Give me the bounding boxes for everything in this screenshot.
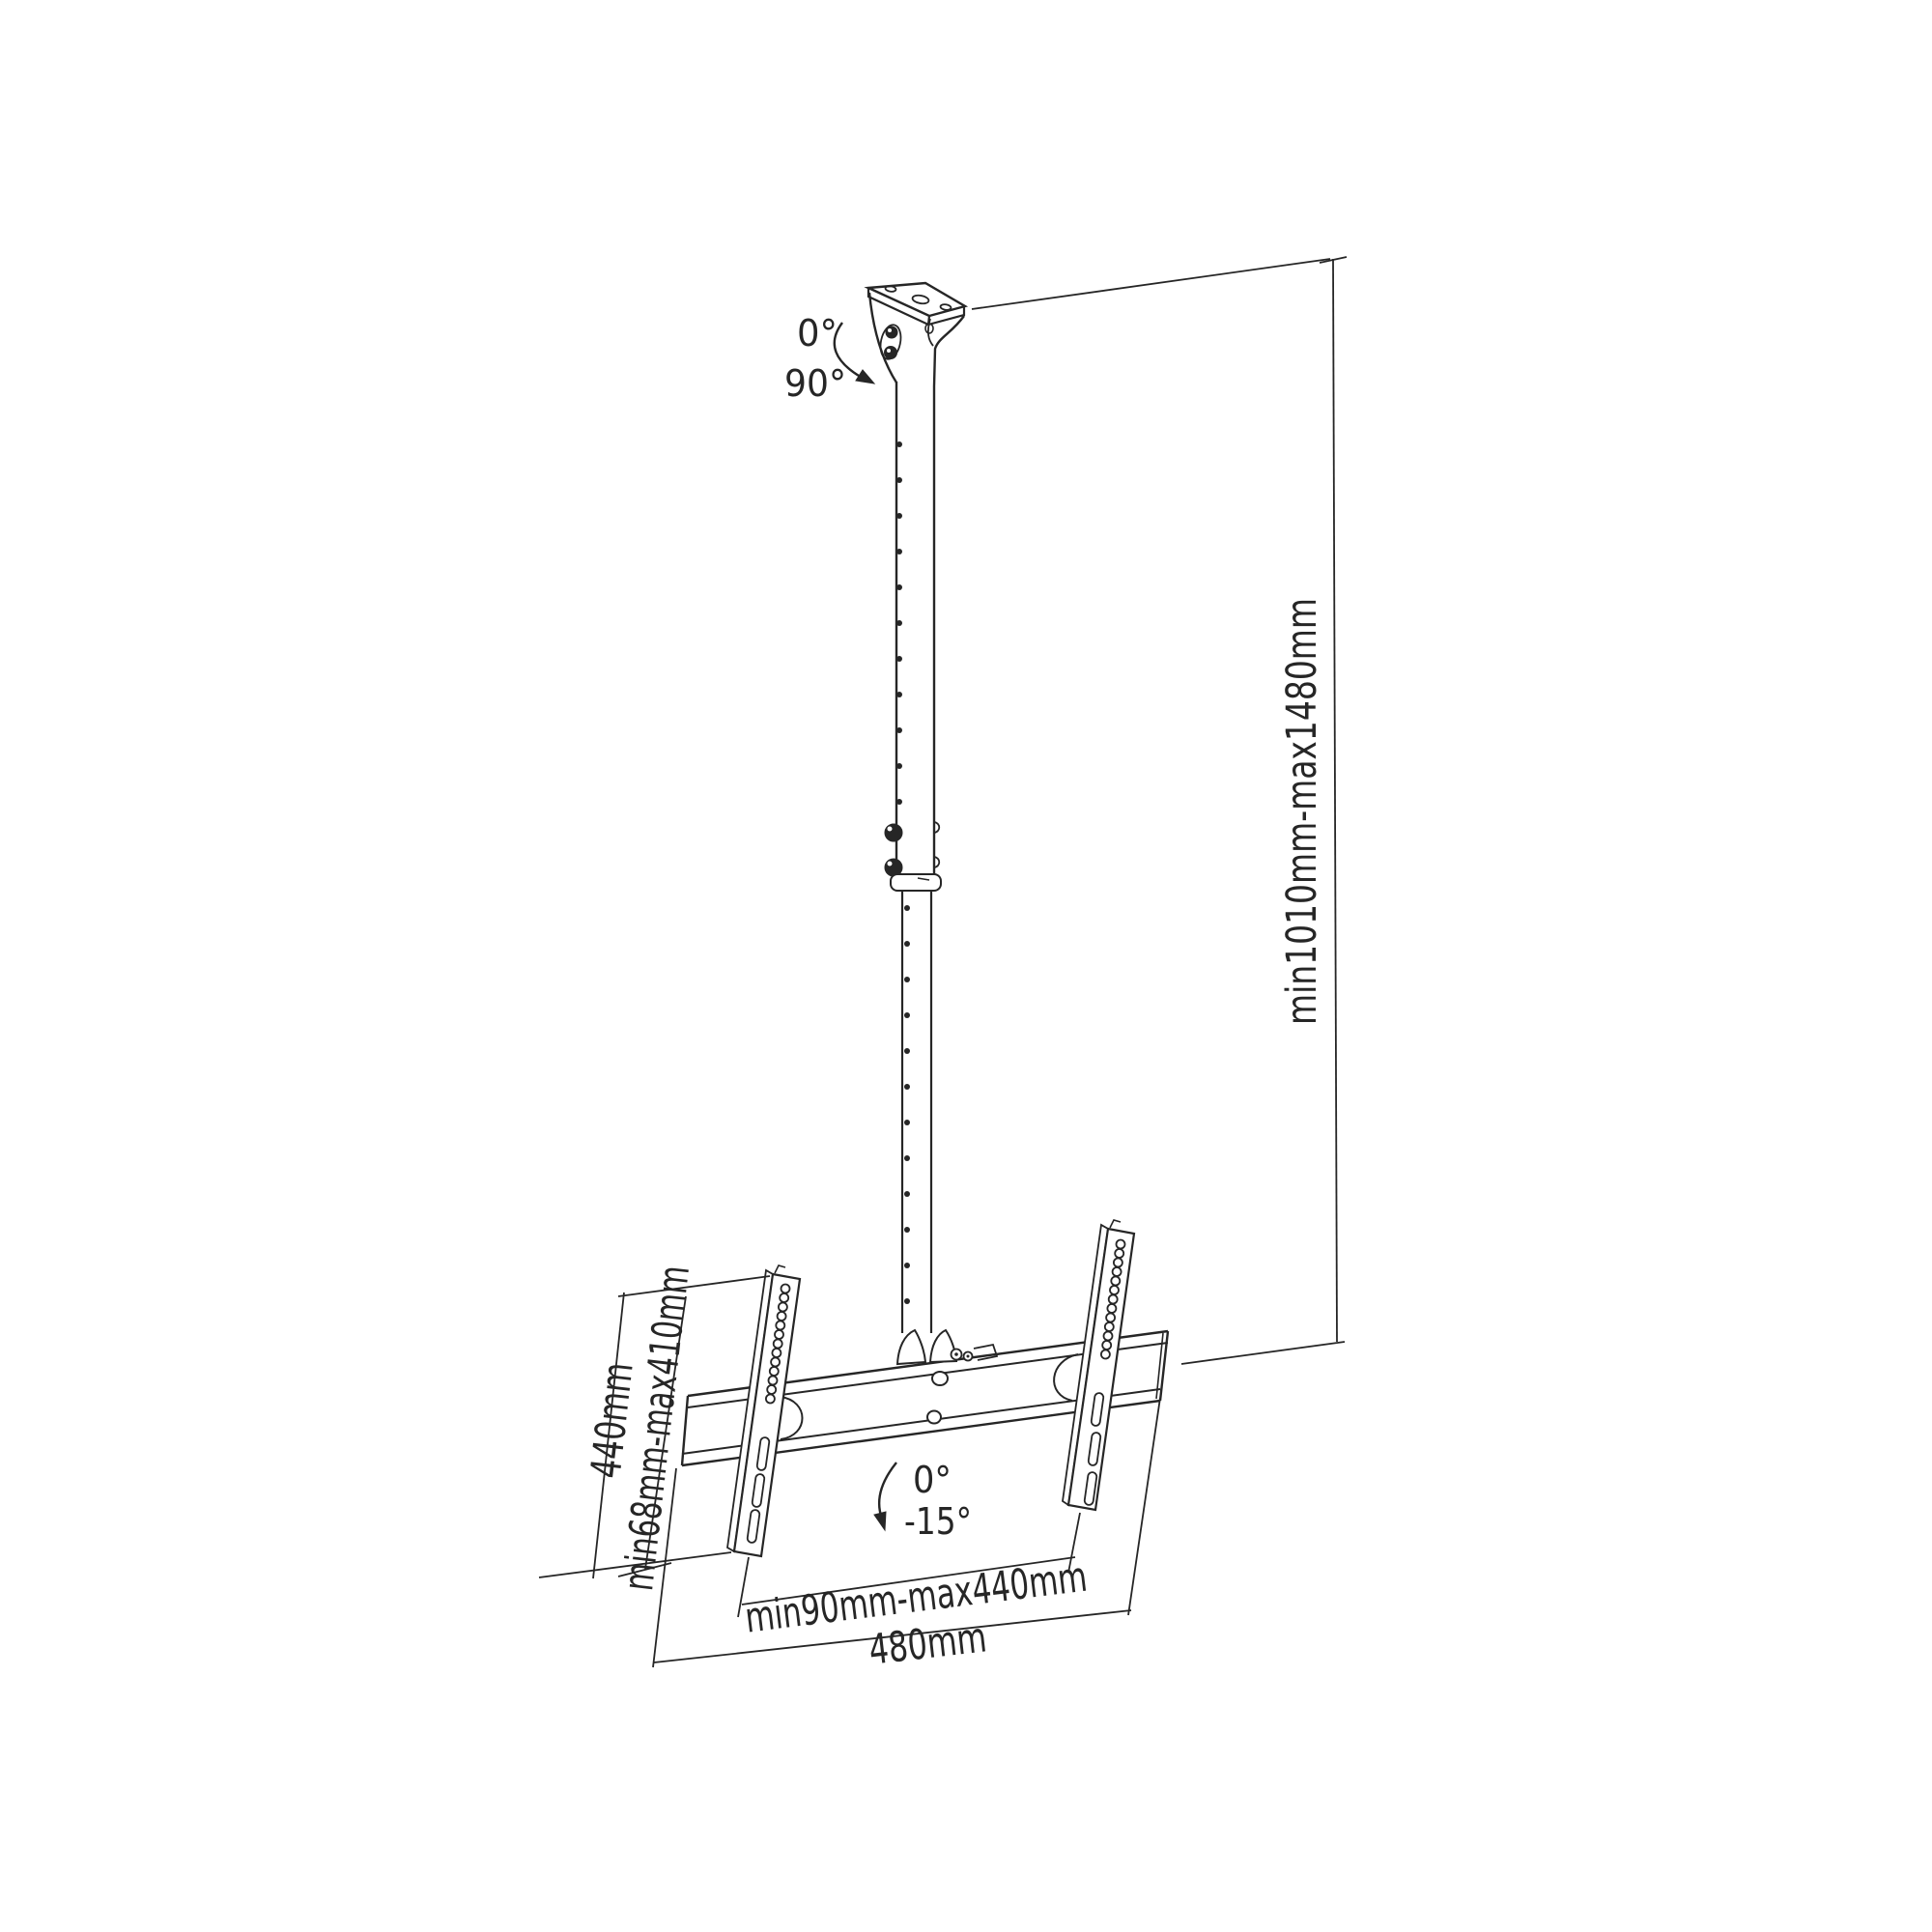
ceiling-tv-mount-diagram-page: min1010mm-max1480mm 440mm min68mm-max410…	[0, 0, 1932, 1932]
screen-tilt-annotation: 0° -15°	[874, 1459, 972, 1543]
screen-tilt-min-label: 0°	[913, 1459, 952, 1501]
dimension-height: min1010mm-max1480mm	[972, 257, 1347, 1364]
vesa-bracket-right	[1063, 1220, 1134, 1510]
left-cutout	[781, 1397, 803, 1439]
pole-lock-knobs	[885, 824, 902, 876]
pole-tilt-annotation: 0° 90°	[784, 312, 874, 405]
vesa-bracket-left	[727, 1265, 800, 1556]
right-cutout	[1054, 1354, 1078, 1401]
screen-tilt-max-label: -15°	[904, 1500, 972, 1543]
pole-tilt-arrowhead	[856, 370, 874, 384]
height-range-label: min1010mm-max1480mm	[1278, 598, 1326, 1025]
ceiling-mount-diagram: min1010mm-max1480mm 440mm min68mm-max410…	[0, 0, 1932, 1932]
inner-tube-adjust-holes	[904, 905, 910, 1304]
pole-collar	[891, 874, 941, 891]
screen-tilt-arrow-arc	[879, 1463, 896, 1519]
ceiling-plate	[868, 283, 965, 325]
pole-tilt-min-label: 0°	[797, 312, 838, 355]
tilt-head	[897, 1330, 997, 1364]
crossbar-right-cap	[1160, 1331, 1168, 1401]
screen-tilt-arrowhead	[874, 1512, 886, 1530]
pole-tilt-max-label: 90°	[784, 362, 846, 405]
telescopic-pole	[885, 382, 941, 1333]
tilt-lock-screws	[877, 323, 903, 360]
